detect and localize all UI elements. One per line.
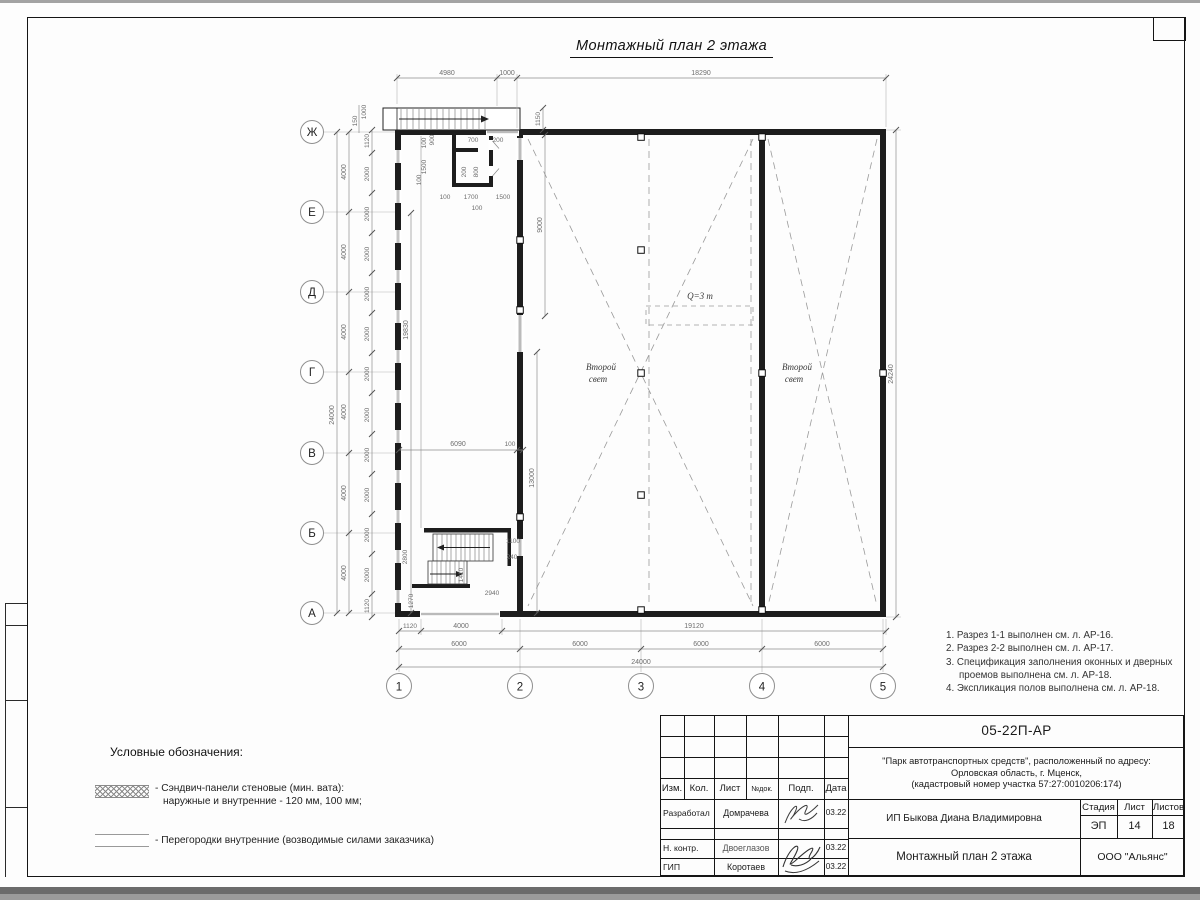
dim-label: 24000 (329, 405, 336, 425)
tb-header-izm: Изм. (660, 779, 684, 799)
dim-label: 1120 (403, 623, 417, 630)
dim-label: 2000 (364, 326, 371, 341)
note-item: 4. Экспликация полов выполнена см. л. АР… (946, 682, 1196, 695)
tb-line (660, 736, 848, 737)
signature-2 (779, 837, 824, 876)
axis-label: В (308, 448, 316, 460)
dim-label: 2000 (364, 567, 371, 582)
extension-lines (323, 74, 901, 672)
note-item: 3. Спецификация заполнения оконных и две… (946, 656, 1196, 683)
legend-item-line: наружные и внутренние - 120 мм, 100 мм; (155, 795, 362, 808)
second-light-label: свет (589, 374, 608, 384)
tb-sheet-value: 14 (1117, 815, 1152, 838)
dim-label: 6000 (451, 641, 467, 648)
tb-project-line: Орловская область, г. Мценск, (951, 768, 1082, 780)
dim-label: 19830 (403, 320, 410, 340)
dim-label: 1500 (496, 194, 511, 201)
tb-doc-number: 05-22П-АР (848, 715, 1185, 747)
dim-label: 2000 (364, 527, 371, 542)
tb-role: ГИП (660, 858, 717, 877)
dim-label: 4000 (453, 623, 469, 630)
dim-label: 2800 (402, 549, 409, 564)
dim-label: 4000 (341, 244, 348, 260)
tb-stage-label: Стадия (1080, 800, 1117, 815)
dim-label: 6000 (572, 641, 588, 648)
tb-date: 03.22 (824, 839, 848, 858)
tb-name: Коротаев (714, 858, 778, 877)
top-staircase (383, 108, 520, 130)
dim-label: 700 (468, 137, 479, 144)
axis-label: 4 (759, 682, 766, 694)
dim-label: 2000 (364, 407, 371, 422)
dim-label: 4980 (439, 70, 455, 77)
second-light-label: Второй (586, 362, 617, 372)
second-light-label: свет (785, 374, 804, 384)
tb-header-podp: Подп. (778, 779, 824, 799)
dim-label: 4000 (341, 565, 348, 581)
dim-label: 1700 (464, 194, 479, 201)
dim-label: 800 (473, 166, 480, 177)
dim-label: 100 (440, 194, 451, 201)
tb-role: Н. контр. (660, 839, 717, 858)
dim-label: 4000 (341, 485, 348, 501)
legend-item-line: - Сэндвич-панели стеновые (мин. вата): (155, 782, 362, 795)
tb-stage-value: ЭП (1080, 815, 1117, 838)
dim-label: 9000 (537, 217, 544, 233)
axis-label: 2 (517, 682, 523, 694)
dim-label: 1410 (458, 567, 465, 582)
dim-label: 2940 (485, 590, 500, 597)
axis-label: Е (308, 207, 316, 219)
dim-label: 1270 (408, 593, 415, 608)
dim-label: 200 (493, 137, 504, 144)
dim-label: 6000 (814, 641, 830, 648)
tb-header-data: Дата (824, 779, 848, 799)
dim-label: 2000 (364, 286, 371, 301)
dim-label: 150 (352, 115, 359, 126)
tb-line (660, 757, 848, 758)
dim-label: 1120 (364, 599, 371, 613)
dim-label: 2000 (364, 447, 371, 462)
axis-label: Ж (307, 127, 318, 139)
tb-name: Двоеглазов (714, 839, 778, 858)
void-cross-lines (528, 139, 877, 606)
dimension-ticks (334, 75, 899, 670)
dim-label: 900 (429, 134, 436, 145)
tb-header-kol: Кол. (684, 779, 714, 799)
axis-label: Д (308, 287, 316, 299)
tb-date: 03.22 (824, 799, 848, 828)
tb-header-ndok: №док. (746, 779, 778, 799)
signature-1 (779, 799, 824, 829)
second-light-label: Второй (782, 362, 813, 372)
dim-label: 2000 (364, 487, 371, 502)
dim-label: 4000 (341, 324, 348, 340)
axis-label: Б (308, 528, 316, 540)
legend-swatch-partition (95, 834, 149, 847)
dim-label: 1500 (421, 159, 428, 174)
dim-label: 200 (461, 166, 468, 177)
general-notes: 1. Разрез 1-1 выполнен см. л. АР-16. 2. … (946, 629, 1196, 696)
dim-label: 100 (421, 137, 428, 148)
dim-label: 100 (472, 205, 483, 212)
dim-label: 19120 (684, 623, 704, 630)
note-item: 1. Разрез 1-1 выполнен см. л. АР-16. (946, 629, 1196, 642)
legend-item-text: - Сэндвич-панели стеновые (мин. вата): н… (155, 782, 362, 809)
dim-label: 2000 (364, 206, 371, 221)
dim-label: 100 (416, 174, 423, 185)
dim-label: 6000 (693, 641, 709, 648)
hall-annotations: Второй свет Второй свет Q=3 т (586, 291, 813, 384)
column-markers (517, 134, 887, 614)
axis-label: Г (309, 367, 316, 379)
dim-label: 1100 (506, 538, 520, 545)
tb-sheets-label: Листов (1152, 800, 1185, 815)
dim-label: 6090 (450, 441, 466, 448)
dim-label: 2000 (364, 366, 371, 381)
tb-role: Разработал (660, 799, 717, 828)
dim-label: 1150 (535, 112, 542, 126)
dim-label: 4000 (341, 164, 348, 180)
note-item: 2. Разрез 2-2 выполнен см. л. АР-17. (946, 642, 1196, 655)
tb-name: Домрачева (714, 799, 778, 828)
crane-capacity-label: Q=3 т (687, 291, 713, 301)
legend-item-text: - Перегородки внутренние (возводимые сил… (155, 834, 434, 847)
legend-title: Условные обозначения: (110, 745, 243, 759)
dim-label: 2000 (364, 246, 371, 261)
tb-header-list: Лист (714, 779, 746, 799)
tb-sheets-value: 18 (1152, 815, 1185, 838)
tb-drawing-title: Монтажный план 2 этажа (848, 838, 1080, 877)
axis-label: 1 (396, 682, 402, 694)
tb-project-line: (кадастровый номер участка 57:27:0010206… (911, 779, 1121, 791)
dim-label: 1120 (364, 134, 371, 148)
dim-label: 1000 (361, 104, 368, 119)
axis-label: 5 (880, 682, 886, 694)
axis-bubbles-rows: Ж Е Д Г В Б А (301, 121, 324, 625)
tb-date: 03.22 (824, 858, 848, 877)
dim-label: 24240 (888, 364, 895, 384)
tb-project-line: "Парк автотранспортных средств", располо… (882, 756, 1151, 768)
legend-swatch-sandwich-panel (95, 785, 149, 798)
tb-sheet-label: Лист (1117, 800, 1152, 815)
tb-client: ИП Быкова Диана Владимировна (848, 800, 1080, 838)
tb-project-desc: "Парк автотранспортных средств", располо… (848, 747, 1185, 800)
dim-label: 100 (505, 441, 516, 448)
tb-company: ООО "Альянс" (1080, 838, 1185, 877)
axis-label: А (308, 608, 316, 620)
dim-label: 1000 (499, 70, 515, 77)
dim-label: 13000 (529, 468, 536, 488)
dim-label: 24000 (631, 659, 651, 666)
dim-label: 4000 (341, 404, 348, 420)
axis-label: 3 (638, 682, 644, 694)
dim-label: 18290 (691, 70, 711, 77)
axis-bubbles-cols: 1 2 3 4 5 (387, 674, 896, 699)
dim-label: 240 (507, 554, 518, 561)
dim-label: 2000 (364, 166, 371, 181)
